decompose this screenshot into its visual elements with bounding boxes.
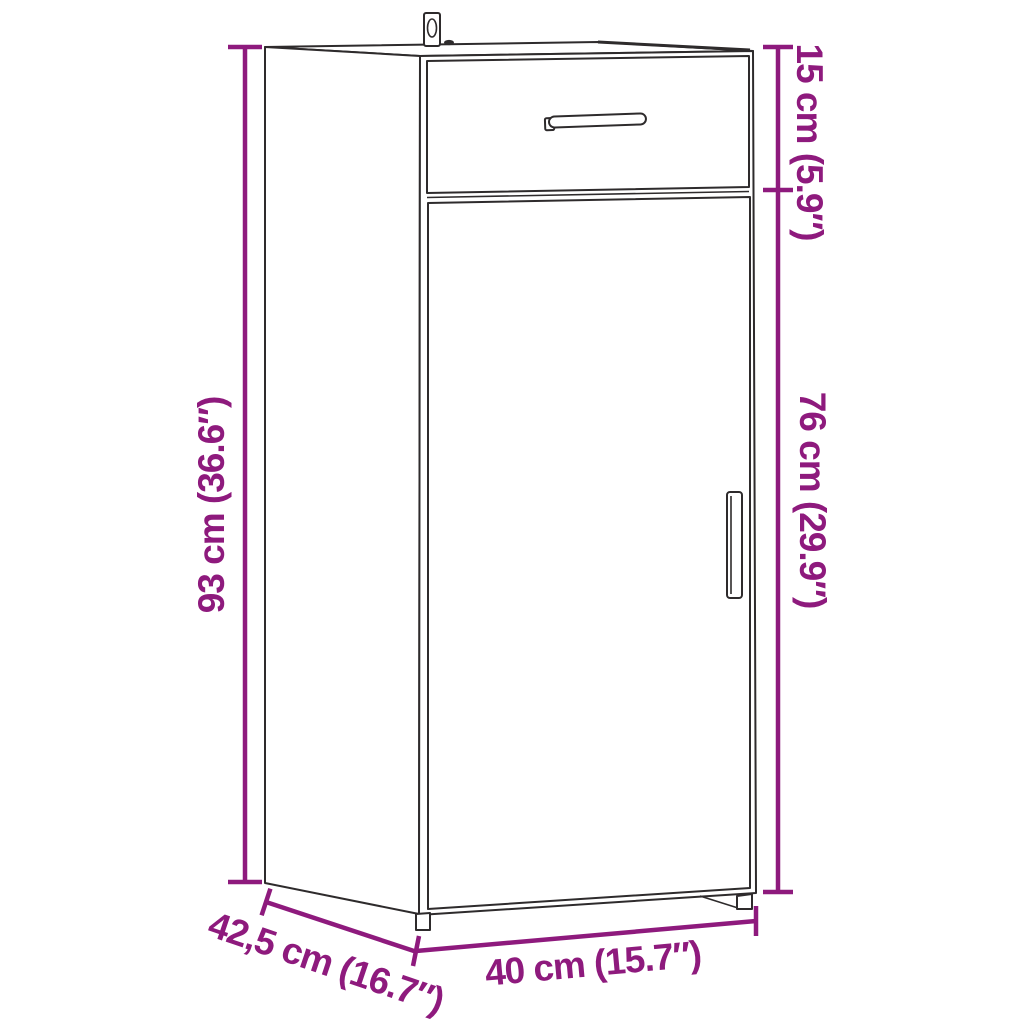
base-edge-line	[700, 896, 738, 908]
bracket-plate	[424, 13, 440, 46]
dimension-label-overall-height: 93 cm (36.6″)	[191, 397, 233, 614]
cabinet-line-drawing	[0, 0, 1024, 1024]
product-dimension-diagram: 93 cm (36.6″) 15 cm (5.9″) 76 cm (29.9″)…	[0, 0, 1024, 1024]
foot-right	[737, 894, 752, 909]
cabinet-side-panel	[265, 47, 420, 914]
door-handle-bar	[727, 492, 742, 598]
door-handle	[727, 492, 742, 598]
overall-height-dimension-line	[228, 47, 262, 882]
wall-mount-bracket	[424, 13, 454, 46]
dimension-label-lower-section-height: 76 cm (29.9″)	[791, 392, 833, 609]
dimension-label-top-section-height: 15 cm (5.9″)	[788, 44, 830, 241]
cabinet-body	[265, 42, 756, 930]
drawer-handle-bar	[549, 113, 646, 127]
foot-left	[416, 913, 430, 930]
cabinet-door	[428, 197, 750, 909]
mounting-dot	[444, 40, 454, 45]
